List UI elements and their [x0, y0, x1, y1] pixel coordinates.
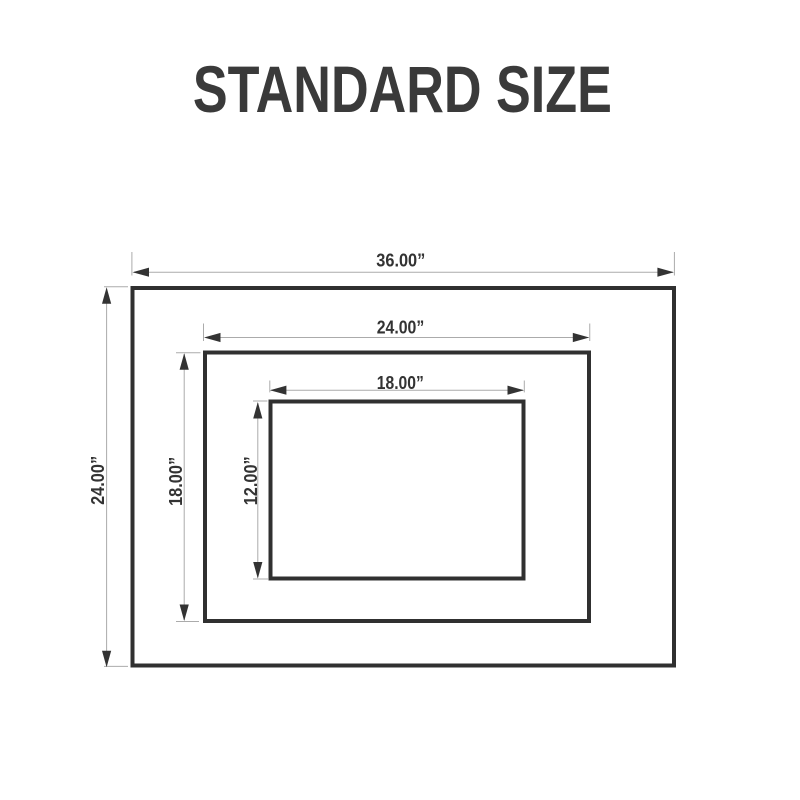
svg-text:18.00”: 18.00”: [377, 373, 424, 393]
svg-text:18.00”: 18.00”: [166, 457, 186, 506]
svg-text:24.00”: 24.00”: [377, 318, 425, 338]
svg-text:24.00”: 24.00”: [88, 456, 108, 505]
svg-text:36.00”: 36.00”: [376, 251, 425, 271]
svg-text:12.00”: 12.00”: [241, 456, 261, 505]
svg-text:STANDARD SIZE: STANDARD SIZE: [193, 52, 612, 126]
